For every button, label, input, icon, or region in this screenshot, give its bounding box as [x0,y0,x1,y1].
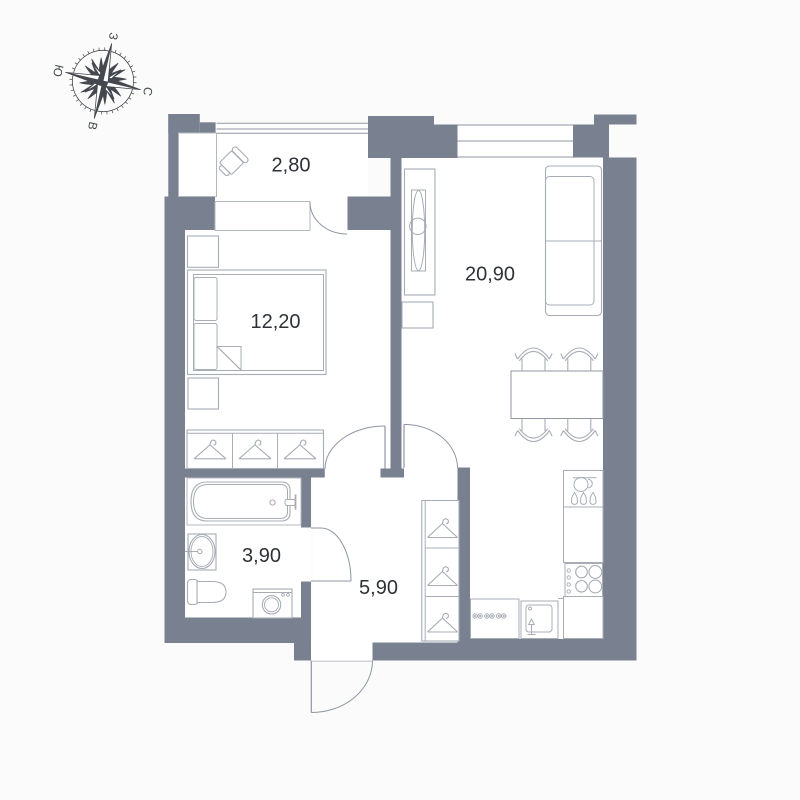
svg-text:3,90: 3,90 [242,545,281,567]
svg-text:12,20: 12,20 [250,311,300,333]
svg-text:20,90: 20,90 [465,264,515,286]
svg-text:2,80: 2,80 [272,155,311,177]
svg-text:5,90: 5,90 [359,577,398,599]
